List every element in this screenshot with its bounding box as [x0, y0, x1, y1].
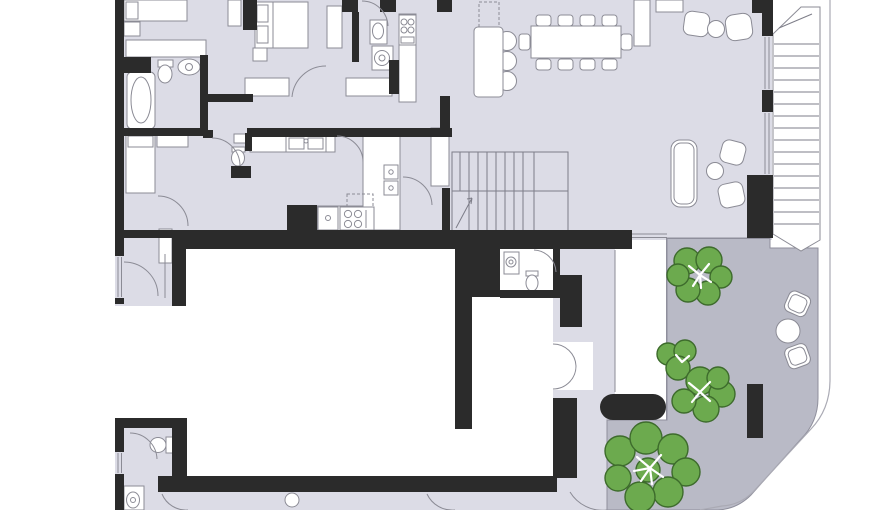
louver-screen — [773, 7, 820, 251]
door-recess — [552, 342, 593, 390]
toilet-icon — [158, 65, 172, 83]
appliance-icon — [384, 165, 398, 179]
toilet-icon — [526, 275, 538, 291]
central-void-right — [472, 297, 553, 478]
dining-chair-icon — [602, 15, 617, 26]
dining-chair-icon — [580, 15, 595, 26]
wardrobe-hatched-icon — [346, 78, 392, 96]
floor-plan-canvas — [0, 0, 880, 510]
pillow-icon — [257, 5, 268, 22]
toilet-tank-icon — [166, 437, 173, 453]
nightstand-icon — [124, 22, 140, 36]
armchair-icon — [717, 181, 746, 210]
wardrobe-hatched-icon — [245, 78, 289, 96]
armchair-icon — [682, 10, 710, 37]
coffee-table-icon — [708, 21, 725, 38]
bench-icon — [747, 384, 763, 438]
wardrobe-icon — [327, 6, 342, 48]
armchair-icon — [724, 12, 753, 41]
coffee-table-icon — [707, 163, 724, 180]
corridor-column — [285, 493, 299, 507]
dining-chair-icon — [558, 15, 573, 26]
toilet-icon — [232, 150, 245, 166]
rounded-wall — [600, 394, 666, 420]
dining-chair-icon — [536, 15, 551, 26]
kitchen-island-icon — [474, 27, 503, 97]
washbasin-icon — [178, 59, 200, 75]
cabinet-icon — [228, 0, 241, 26]
pillow-icon — [257, 26, 268, 43]
sideboard-icon — [634, 0, 650, 46]
side-table-icon — [656, 0, 683, 12]
appliance-icon — [384, 181, 398, 195]
dining-chair-icon — [621, 34, 632, 50]
central-void — [180, 240, 460, 480]
terrace-table-icon — [776, 319, 800, 343]
wardrobe-hatched-icon — [126, 40, 206, 57]
dishwasher-icon — [318, 207, 338, 230]
pillow-icon — [126, 2, 138, 19]
sofa-icon — [671, 140, 697, 207]
pillow-icon — [128, 136, 153, 147]
dining-table-icon — [531, 26, 621, 58]
side-void-strip — [615, 240, 667, 420]
dining-chair-icon — [536, 59, 551, 70]
dining-chair-icon — [558, 59, 573, 70]
floor-plan — [0, 0, 880, 510]
dining-chair-icon — [602, 59, 617, 70]
dining-chair-icon — [519, 34, 530, 50]
dining-chair-icon — [580, 59, 595, 70]
nightstand-icon — [253, 48, 267, 61]
